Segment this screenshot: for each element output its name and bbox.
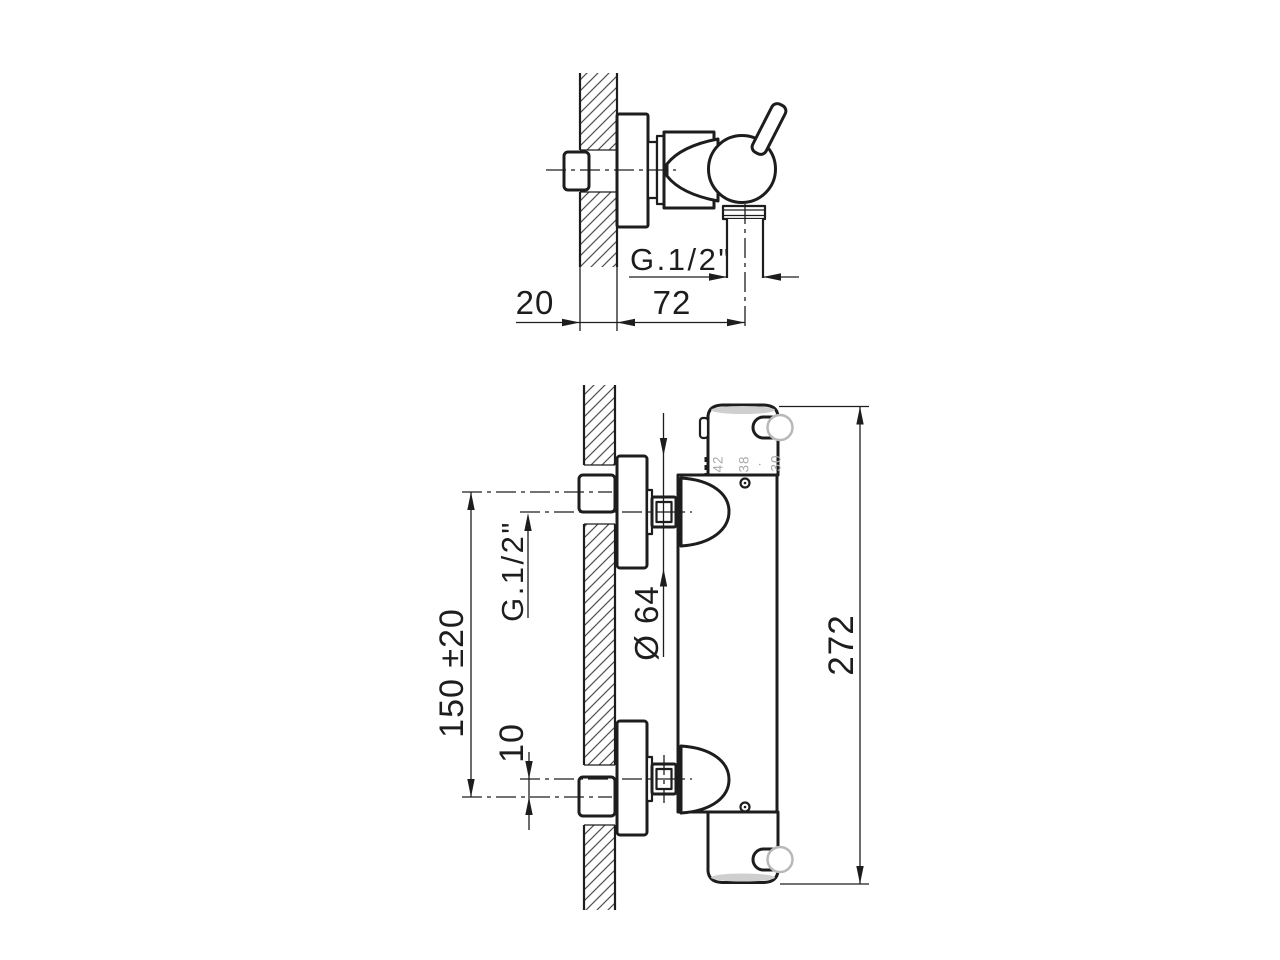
flow-knob-cap-shade xyxy=(711,874,775,882)
outlet-thread-label: G.1/2" xyxy=(630,242,732,277)
flow-knob-body xyxy=(708,812,778,883)
dimension-total-length: 272 xyxy=(779,407,869,885)
dimension-eccentric-offset: 10 xyxy=(493,723,533,830)
spec-sheet-page: G.1/2" 20 72 xyxy=(0,0,1280,960)
body-screw-upper-dot xyxy=(744,482,747,485)
temperature-knob-cap-shade xyxy=(711,406,775,414)
scale-mark-dot: · xyxy=(752,461,767,467)
flow-knob xyxy=(708,812,793,883)
supply-nut-side xyxy=(564,152,589,190)
dimension-supply-spacing: 150 ±20 xyxy=(433,492,475,797)
scale-mark-42: 42 xyxy=(711,455,726,472)
wall-hatch-middle xyxy=(584,524,615,765)
lever-handle xyxy=(750,102,788,157)
dimension-outlet-thread: G.1/2" xyxy=(629,242,799,281)
callout-inlet-thread: G.1/2" xyxy=(495,513,532,622)
flow-grip-end-cap xyxy=(768,847,793,872)
projection-label: 72 xyxy=(653,284,692,321)
wall-hatch-top xyxy=(584,385,615,465)
side-view: G.1/2" 20 72 xyxy=(516,73,799,331)
temperature-grip-end-cap xyxy=(768,415,793,440)
safety-button xyxy=(700,418,708,438)
wall-section-front xyxy=(584,385,615,910)
front-view: 42 38 · 30 150 ±20 xyxy=(433,385,869,910)
technical-drawing: G.1/2" 20 72 xyxy=(0,0,1280,960)
escutcheon-diameter-label: Ø 64 xyxy=(628,585,665,661)
wall-hatch-upper xyxy=(580,73,617,150)
wall-thickness-label: 20 xyxy=(516,284,555,321)
wall-hatch-lower xyxy=(580,192,617,267)
supply-spacing-label: 150 ±20 xyxy=(433,608,471,738)
outlet-collar xyxy=(723,206,765,219)
total-length-label: 272 xyxy=(822,614,861,675)
eccentric-offset-label: 10 xyxy=(493,723,531,763)
scale-mark-30: 30 xyxy=(769,454,784,471)
wall-hatch-bottom xyxy=(584,825,615,910)
supply-nut-upper xyxy=(579,475,615,512)
body-screw-lower-dot xyxy=(744,806,747,809)
escutcheon-lower xyxy=(617,721,647,835)
scale-mark-38: 38 xyxy=(737,455,752,472)
inlet-thread-label: G.1/2" xyxy=(495,520,530,622)
temperature-knob: 42 38 · 30 xyxy=(700,405,793,476)
